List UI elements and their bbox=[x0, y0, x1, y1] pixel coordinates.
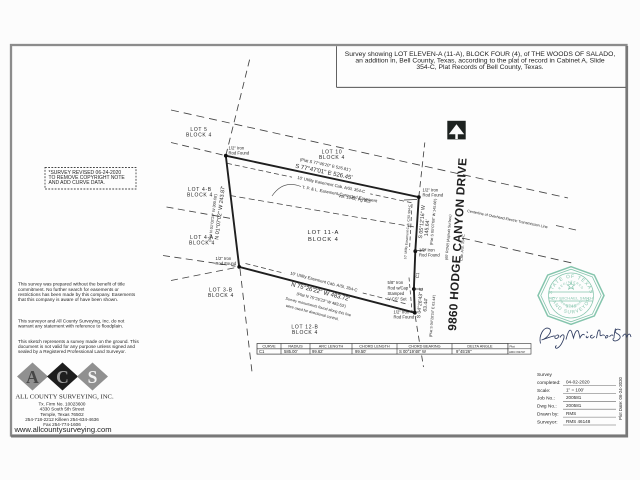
svg-text:Rod Found: Rod Found bbox=[419, 253, 440, 258]
svg-text:Rod Found: Rod Found bbox=[394, 315, 415, 320]
svg-text:that this company is aware of: that this company is aware of have been … bbox=[18, 297, 118, 302]
svg-text:63.44': 63.44' bbox=[422, 298, 429, 312]
svg-text:ALL COUNTY SURVEYING, INC.: ALL COUNTY SURVEYING, INC. bbox=[15, 393, 114, 400]
svg-text:04-02-2020: 04-02-2020 bbox=[566, 379, 590, 384]
svg-text:Rod w/Cap: Rod w/Cap bbox=[388, 286, 409, 291]
svg-text:www.allcountysurveying.com: www.allcountysurveying.com bbox=[13, 425, 111, 434]
svg-text:Rod Found: Rod Found bbox=[229, 151, 250, 156]
svg-text:Rod Found: Rod Found bbox=[423, 193, 444, 198]
svg-text:CURVE: CURVE bbox=[262, 345, 276, 349]
svg-text:354-C, Plat Records of Bell Co: 354-C, Plat Records of Bell County, Texa… bbox=[416, 64, 543, 71]
svg-text:Stamped: Stamped bbox=[388, 291, 405, 296]
svg-text:sealed by a Registered Profess: sealed by a Registered Professional Land… bbox=[18, 349, 126, 354]
svg-text:"ACS" Set: "ACS" Set bbox=[388, 297, 408, 302]
svg-text:200581: 200581 bbox=[566, 395, 582, 400]
svg-text:99.50': 99.50' bbox=[355, 349, 366, 354]
svg-text:Plat: Plat bbox=[510, 345, 515, 349]
svg-text:9°45'26": 9°45'26" bbox=[456, 349, 472, 354]
svg-text:RADIUS: RADIUS bbox=[288, 345, 303, 349]
svg-text:BLOCK 4: BLOCK 4 bbox=[208, 293, 234, 299]
svg-text:RMS 46148: RMS 46148 bbox=[566, 419, 591, 424]
svg-text:completed:: completed: bbox=[537, 380, 560, 386]
svg-text:Rod Found: Rod Found bbox=[216, 261, 237, 266]
svg-text:585.00': 585.00' bbox=[284, 349, 298, 354]
svg-text:C: C bbox=[56, 367, 69, 387]
svg-text:Survey: Survey bbox=[537, 372, 553, 378]
svg-text:C1: C1 bbox=[259, 349, 265, 354]
svg-text:C1: C1 bbox=[415, 272, 421, 279]
svg-text:Scale:: Scale: bbox=[537, 388, 550, 394]
svg-text:99.62': 99.62' bbox=[312, 349, 323, 354]
svg-text:Plot Date: 06-24-2020: Plot Date: 06-24-2020 bbox=[618, 376, 623, 420]
svg-text:Drawn by:: Drawn by: bbox=[537, 412, 559, 418]
svg-text:BLOCK 4: BLOCK 4 bbox=[187, 193, 213, 199]
svg-text:RMS: RMS bbox=[566, 411, 576, 416]
svg-text:5/8" Iron: 5/8" Iron bbox=[388, 280, 404, 285]
svg-text:DELTA ANGLE: DELTA ANGLE bbox=[467, 345, 493, 349]
svg-text:BLOCK 4: BLOCK 4 bbox=[308, 237, 339, 243]
svg-text:ROY MICHAEL SMITH: ROY MICHAEL SMITH bbox=[549, 295, 593, 300]
svg-text:warrant any statement with ref: warrant any statement with reference to … bbox=[18, 324, 123, 329]
svg-text:Surveyor:: Surveyor: bbox=[537, 419, 558, 425]
svg-text:200581: 200581 bbox=[566, 403, 582, 408]
svg-text:A: A bbox=[26, 367, 39, 387]
svg-text:BLOCK 4: BLOCK 4 bbox=[186, 133, 212, 139]
svg-text:Dwg No.:: Dwg No.: bbox=[537, 404, 557, 410]
svg-text:AND ADD CURVE DATA.: AND ADD CURVE DATA. bbox=[49, 180, 105, 186]
svg-text:BLOCK 4: BLOCK 4 bbox=[292, 330, 318, 336]
svg-text:CHORD BEARING: CHORD BEARING bbox=[408, 345, 440, 349]
svg-text:1" = 100': 1" = 100' bbox=[566, 387, 584, 392]
svg-text:BLOCK 4: BLOCK 4 bbox=[319, 155, 345, 161]
svg-text:S: S bbox=[88, 367, 98, 387]
svg-text:ARC LENGTH: ARC LENGTH bbox=[319, 345, 344, 349]
svg-text:LOT 11-A: LOT 11-A bbox=[308, 230, 340, 236]
svg-text:S 00°19'48" W: S 00°19'48" W bbox=[399, 349, 426, 354]
svg-text:Job No.:: Job No.: bbox=[537, 396, 555, 402]
svg-text:6748: 6748 bbox=[566, 303, 577, 308]
svg-text:CHORD LENGTH: CHORD LENGTH bbox=[359, 345, 390, 349]
svg-text:ARC=99.53': ARC=99.53' bbox=[509, 350, 526, 354]
